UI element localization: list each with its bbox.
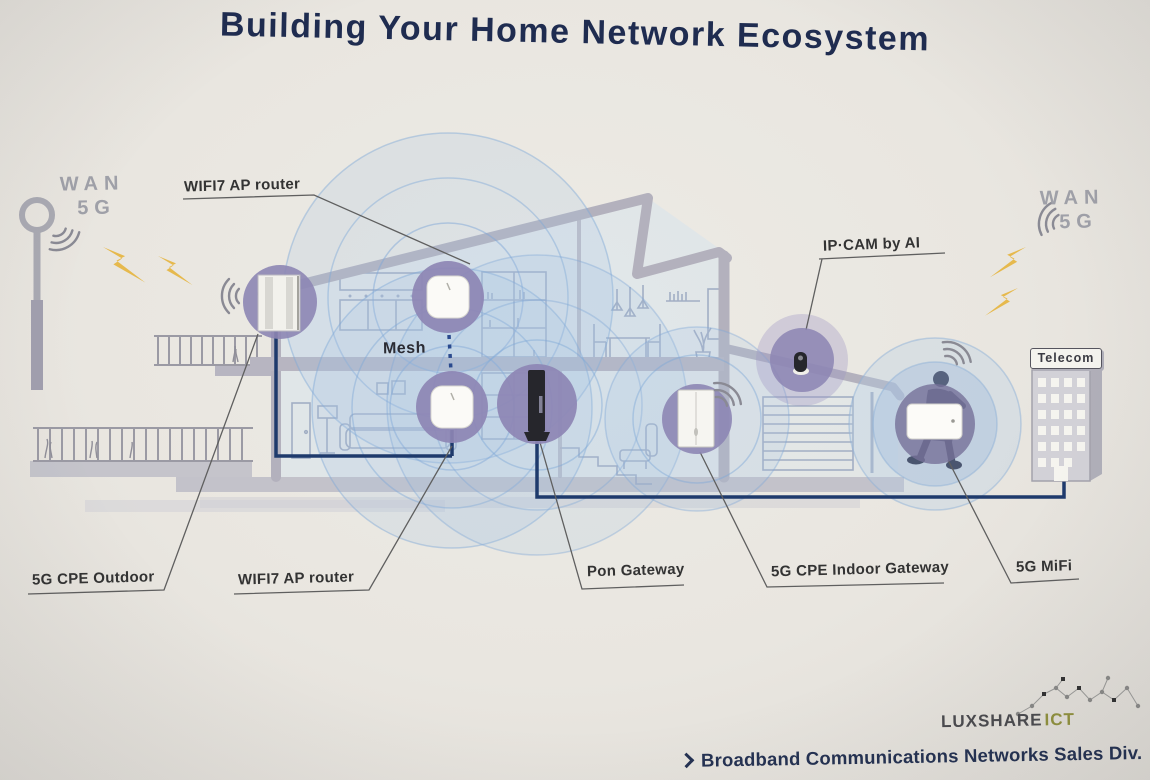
wan-right-line2: 5G (1059, 209, 1105, 234)
wan-left-line2: 5G (77, 195, 125, 220)
label-mesh: Mesh (383, 340, 426, 359)
label-cpe-outdoor: 5G CPE Outdoor (32, 568, 155, 588)
wan-5g-right-label: WAN 5G (1040, 185, 1105, 234)
ip-cam-device (770, 328, 834, 392)
wifi-arcs-wan-left-icon (45, 224, 83, 256)
wan-5g-left-label: WAN 5G (60, 171, 125, 220)
footer-chevron-icon (678, 753, 694, 769)
cpe-outdoor-device (243, 265, 317, 339)
diagram-canvas (0, 0, 1150, 780)
lightning-bolt-icon (100, 247, 149, 283)
slide: Building Your Home Network Ecosystem WAN… (0, 0, 1150, 780)
label-pon-gateway: Pon Gateway (587, 561, 685, 581)
wan-left-line1: WAN (60, 171, 125, 196)
5g-antenna-pole-icon (22, 200, 52, 390)
label-ip-cam: IP·CAM by AI (823, 234, 921, 254)
wifi7-ap-upper-device (412, 261, 484, 333)
logo-unit: ICT (1044, 710, 1075, 730)
telecom-building (1032, 363, 1102, 481)
label-5g-mifi: 5G MiFi (1016, 557, 1073, 575)
wifi7-ap-lower-device (416, 371, 488, 443)
fences (33, 336, 262, 461)
mifi-device (895, 384, 975, 464)
lightning-bolt-icon (982, 288, 1020, 316)
label-wifi7-ap-router-top: WIFI7 AP router (184, 175, 301, 195)
logo-company: LUXSHARE (941, 710, 1043, 731)
lightning-bolt-icon (987, 247, 1029, 277)
luxshare-ict-logo: LUXSHAREICT (941, 710, 1075, 732)
lightning-bolt-icon (155, 256, 195, 285)
label-wifi7-ap-router-bottom: WIFI7 AP router (238, 568, 355, 588)
telecom-sign: Telecom (1030, 348, 1102, 369)
wan-right-line1: WAN (1040, 185, 1105, 210)
pon-gateway-device (497, 364, 577, 444)
wifi-arcs-cpe-outdoor-icon (222, 279, 239, 313)
cpe-indoor-gateway-device (662, 384, 732, 454)
